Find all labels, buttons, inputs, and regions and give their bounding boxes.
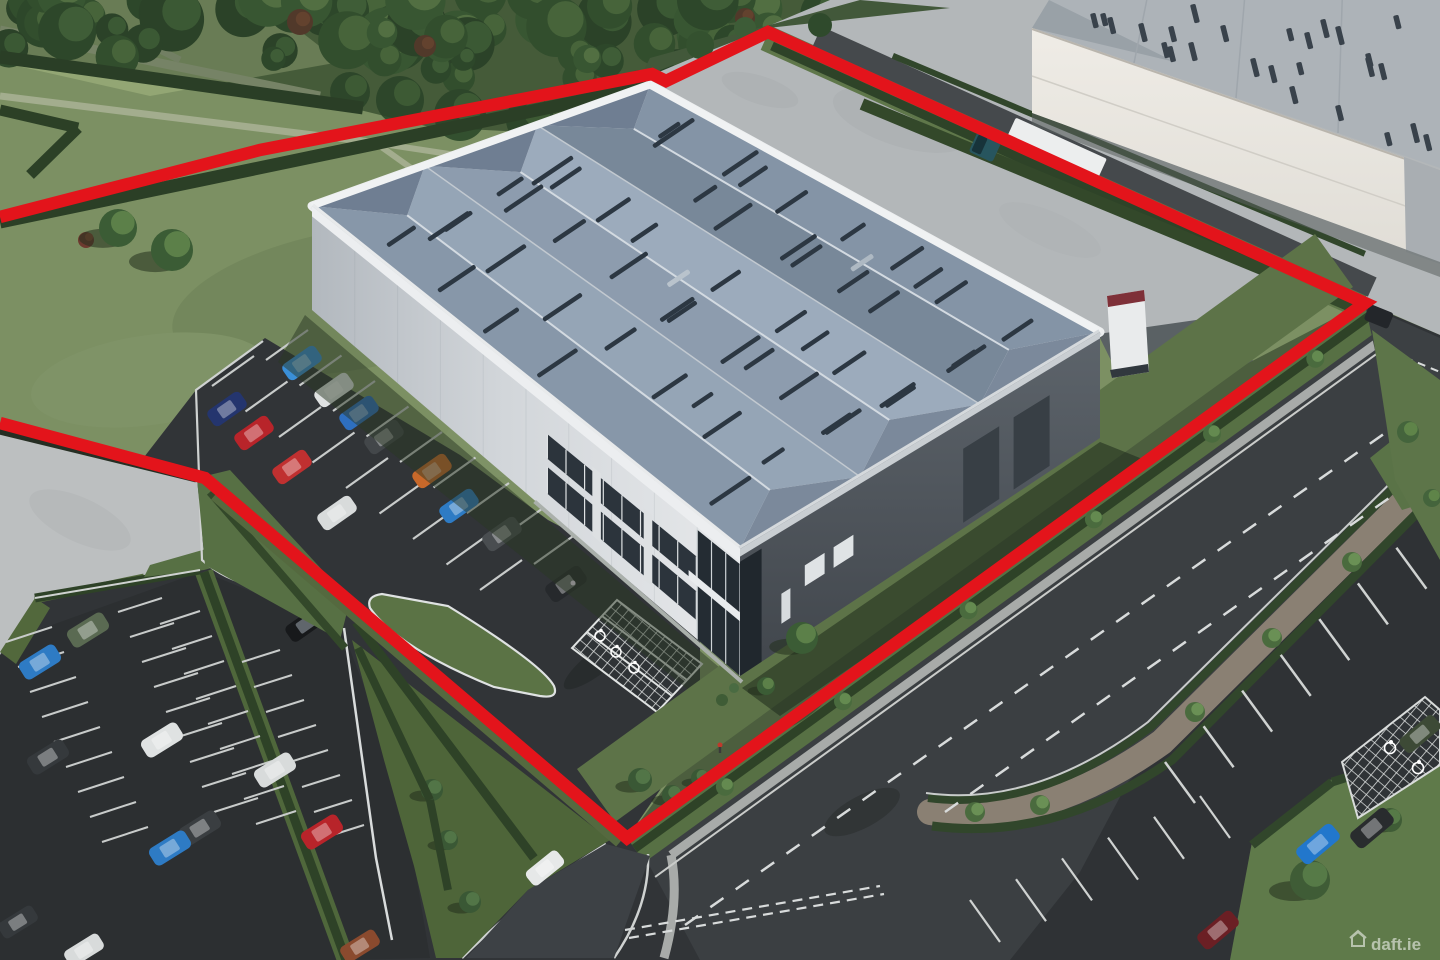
svg-text:daft.ie: daft.ie (1371, 935, 1421, 954)
